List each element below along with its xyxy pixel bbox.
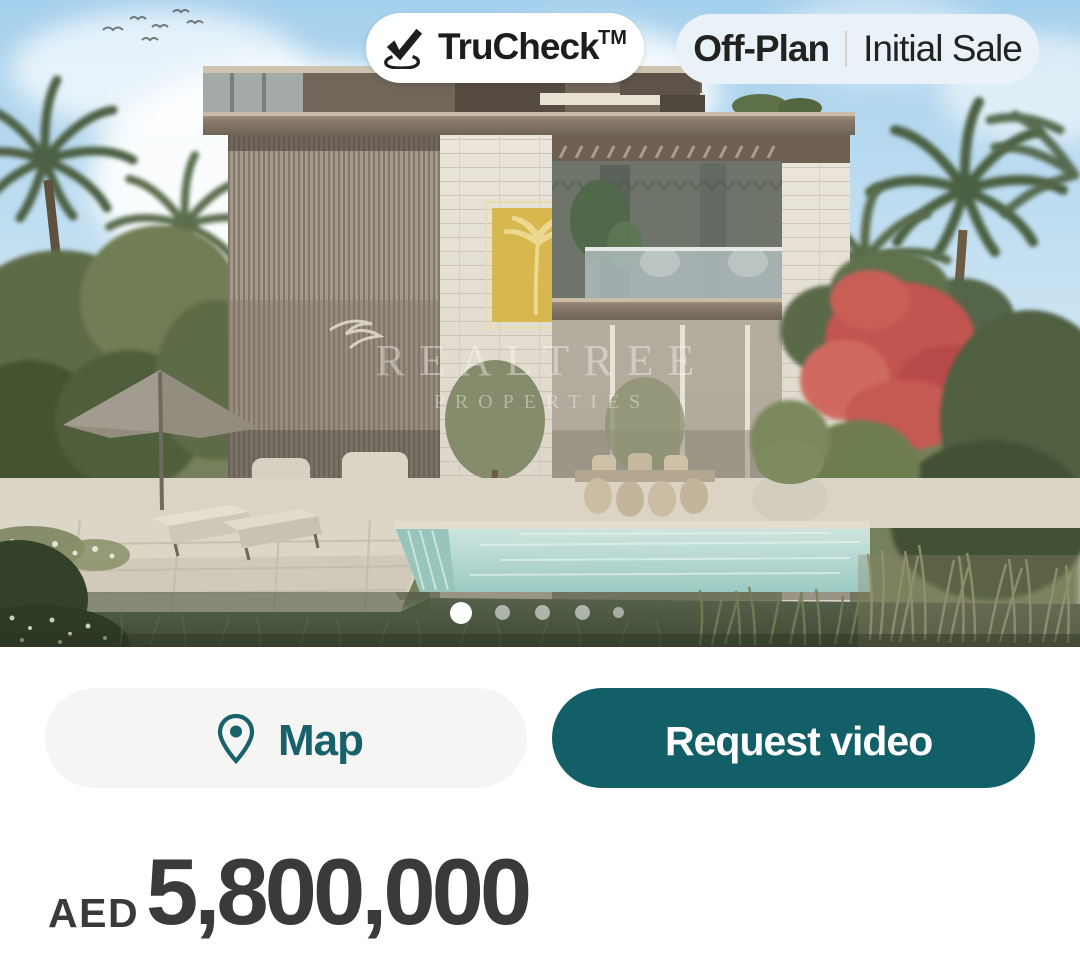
svg-text:REALTREE: REALTREE — [376, 336, 709, 385]
svg-text:PROPERTIES: PROPERTIES — [434, 391, 651, 413]
